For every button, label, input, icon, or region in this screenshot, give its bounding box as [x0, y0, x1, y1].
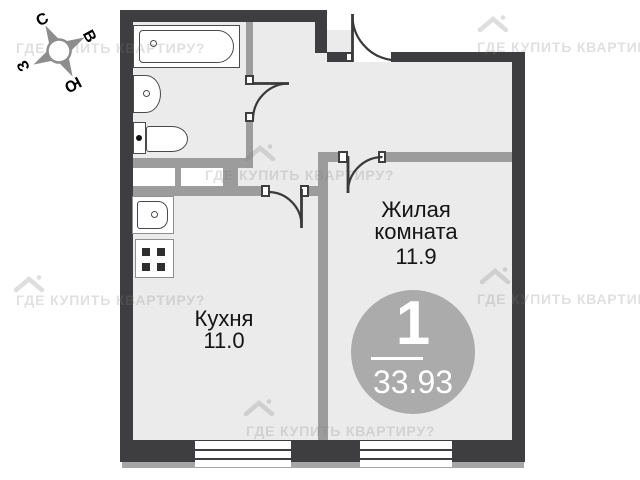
floorplan-canvas: Жилая комната 11.9 Кухня 11.0 1 33.93 ГД…: [0, 0, 640, 480]
badge-divider: [371, 357, 423, 360]
jamb-kitchen-left: [261, 185, 270, 197]
living-room-name-line2: комната: [340, 221, 492, 243]
window-glazing-line: [195, 458, 291, 461]
jamb-bathroom-bottom: [245, 112, 254, 122]
watermark-text: ГДЕ КУПИТЬ КВАРТИРУ?: [246, 423, 435, 439]
jamb-entrance: [345, 52, 353, 62]
room-count: 1: [396, 294, 430, 354]
watermark-house-icon: [480, 15, 506, 30]
jamb-living-right: [378, 151, 386, 163]
stove-burner-icon: [157, 248, 165, 256]
window-glazing-line: [195, 449, 291, 452]
toilet-bowl-icon: [146, 126, 188, 152]
washbasin-drain-icon: [143, 90, 150, 97]
wall-living-north-right: [379, 152, 513, 162]
kitchen-area: 11.0: [149, 330, 299, 352]
jamb-bathroom-top: [245, 75, 254, 85]
kitchen-label: Кухня 11.0: [149, 308, 299, 352]
balcony-sill-line: [122, 462, 524, 468]
watermark-text: ГДЕ КУПИТЬ КВАРТИРУ?: [16, 40, 205, 56]
jamb-kitchen-right: [300, 185, 309, 197]
wall-left: [120, 10, 133, 462]
wall-bottom: [120, 440, 525, 462]
watermark-text: ГДЕ КУПИТЬ КВАРТИРУ?: [16, 292, 205, 308]
wall-kitchen-north-left: [120, 186, 268, 196]
stove-burner-icon: [142, 248, 150, 256]
compass-west-label: З: [14, 57, 34, 74]
apartment-summary-badge: 1 33.93: [351, 290, 475, 414]
kitchen-window: [195, 441, 291, 467]
living-room-area: 11.9: [340, 246, 492, 268]
living-room-window: [360, 441, 452, 467]
wall-right: [512, 52, 525, 462]
entrance-door-icon: [352, 14, 391, 62]
total-area: 33.93: [373, 365, 453, 399]
watermark-house-icon: [16, 275, 42, 290]
window-glazing-line: [360, 449, 452, 452]
stove-burner-icon: [142, 263, 150, 271]
window-glazing-line: [360, 458, 452, 461]
compass-south-label: Ю: [61, 73, 84, 96]
duct-niche-opening-1: [133, 168, 175, 186]
kitchen-name: Кухня: [149, 308, 299, 330]
kitchen-sink-drain-icon: [151, 211, 158, 218]
watermark-text: ГДЕ КУПИТЬ КВАРТИРУ?: [477, 291, 640, 307]
wall-top-left: [120, 10, 327, 22]
watermark-text: ГДЕ КУПИТЬ КВАРТИРУ?: [205, 167, 394, 183]
living-room-label: Жилая комната 11.9: [340, 199, 492, 268]
wall-kitchen-living-divider: [318, 152, 328, 440]
stove-counter: [135, 239, 174, 278]
wall-bathroom-right-upper: [246, 22, 253, 78]
living-room-name-line1: Жилая: [340, 199, 492, 221]
stove-burner-icon: [157, 263, 165, 271]
compass-north-label: С: [33, 9, 52, 30]
toilet-valve-icon: [136, 135, 142, 141]
watermark-text: ГДЕ КУПИТЬ КВАРТИРУ?: [477, 39, 640, 55]
wall-top-step: [315, 12, 327, 53]
jamb-living-left: [338, 151, 348, 163]
wall-entrance-left: [327, 52, 347, 62]
